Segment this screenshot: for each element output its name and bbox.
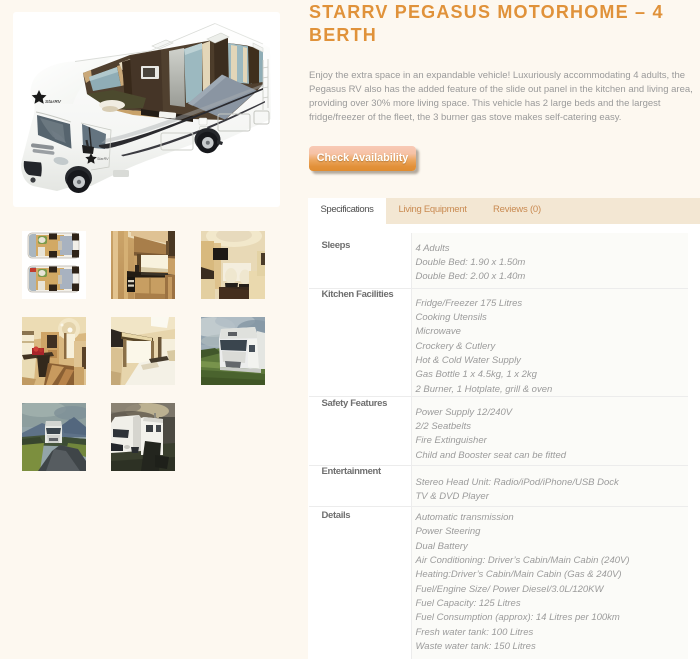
svg-text:StarRV: StarRV	[45, 99, 62, 105]
svg-text:StarRV: StarRV	[97, 157, 109, 161]
